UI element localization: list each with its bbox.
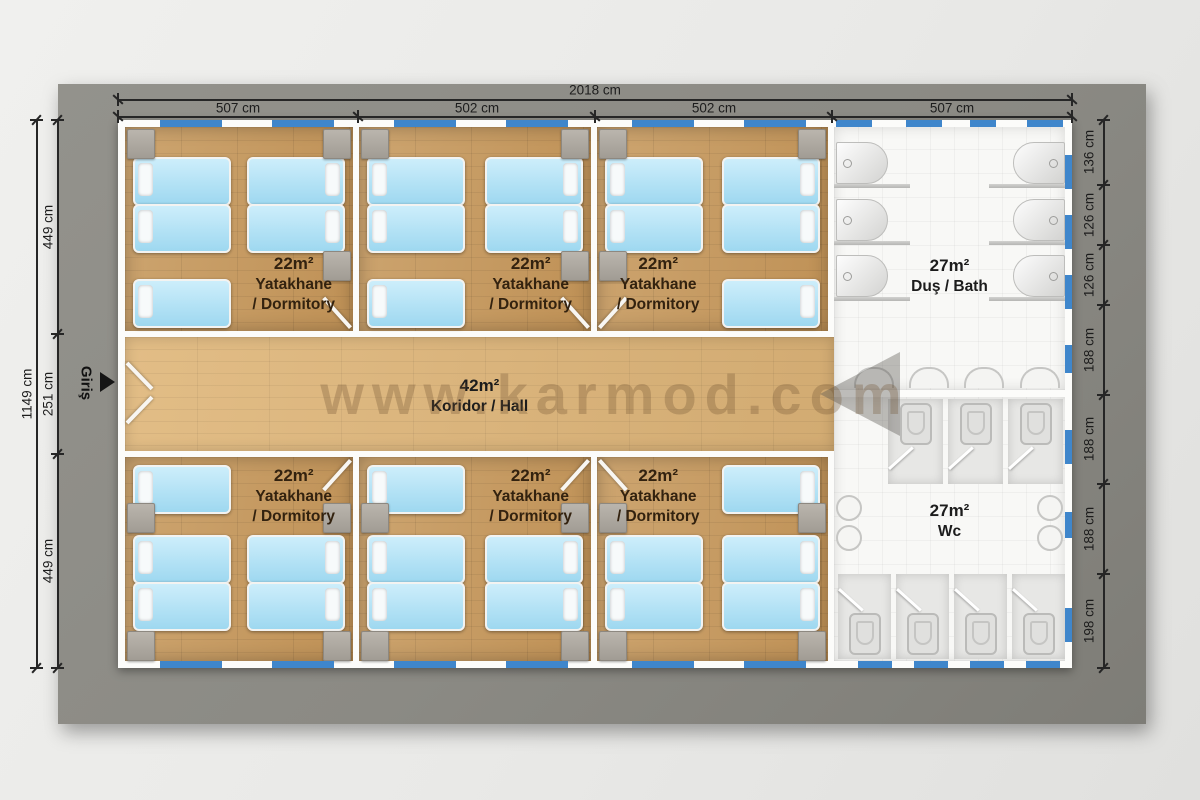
locker: [361, 129, 389, 159]
room-label: 22m² Yatakhane / Dormitory: [239, 253, 348, 315]
pillow: [563, 588, 578, 621]
stall-door: [838, 588, 864, 612]
shower-partition: [989, 297, 1065, 301]
dimension-label: 507 cm: [216, 101, 260, 116]
window: [744, 661, 806, 668]
room-label: 22m² Yatakhane / Dormitory: [604, 465, 713, 527]
dimension-label: 449 cm: [41, 539, 56, 583]
room-name-tr: Yatakhane: [239, 487, 348, 507]
dimension-line-total-height: [36, 120, 38, 668]
shower-partition: [834, 297, 910, 301]
dimension-label: 2018 cm: [569, 83, 621, 98]
bed: [485, 204, 583, 253]
shower-tray: [836, 199, 888, 241]
dimension-label: 188 cm: [1082, 417, 1097, 461]
bed: [367, 204, 465, 253]
watermark-arrow-icon: [820, 352, 900, 436]
window: [970, 661, 1004, 668]
bed: [605, 157, 703, 206]
bed: [485, 157, 583, 206]
toilet: [900, 403, 932, 445]
pillow: [800, 588, 815, 621]
locker: [127, 503, 155, 533]
bed: [722, 204, 820, 253]
dimension-label: 502 cm: [455, 101, 499, 116]
dimension-label: 198 cm: [1082, 599, 1097, 643]
bed: [722, 279, 820, 328]
locker: [561, 631, 589, 661]
window: [1065, 155, 1072, 189]
locker: [323, 631, 351, 661]
room-area: 27m²: [834, 255, 1065, 277]
window: [906, 120, 942, 127]
stall-door: [1008, 446, 1034, 470]
bed: [247, 535, 345, 584]
window: [160, 120, 222, 127]
window: [506, 661, 568, 668]
shower-tray: [1013, 142, 1065, 184]
locker: [361, 503, 389, 533]
pillow: [563, 210, 578, 243]
pillow: [138, 210, 153, 243]
bed: [485, 582, 583, 631]
bed: [722, 582, 820, 631]
toilet-stall: [838, 574, 891, 659]
pillow: [372, 588, 387, 621]
bed: [722, 535, 820, 584]
toilet: [849, 613, 881, 655]
room-label: 22m² Yatakhane / Dormitory: [475, 465, 586, 527]
dimension-label: 1149 cm: [20, 369, 35, 420]
pillow: [138, 588, 153, 621]
room-label: 42m² Koridor / Hall: [125, 375, 834, 417]
shower-partition: [834, 184, 910, 188]
room-area: 22m²: [604, 465, 713, 487]
room-area: 22m²: [239, 465, 348, 487]
window: [272, 661, 334, 668]
pillow: [325, 588, 340, 621]
washbasin: [1020, 367, 1060, 388]
room-area: 22m²: [604, 253, 713, 275]
locker: [599, 129, 627, 159]
pillow: [563, 541, 578, 574]
pillow: [372, 163, 387, 196]
shower-tray: [836, 142, 888, 184]
window: [1026, 661, 1060, 668]
pillow: [372, 285, 387, 318]
toilet-stall: [1012, 574, 1065, 659]
bed: [133, 582, 231, 631]
pillow: [372, 471, 387, 504]
toilet-stall: [1008, 399, 1063, 484]
room-dormitory-2: 22m² Yatakhane / Dormitory: [359, 127, 591, 331]
bed: [133, 535, 231, 584]
bed: [605, 204, 703, 253]
window: [1065, 345, 1072, 373]
dimension-label: 126 cm: [1082, 193, 1097, 237]
dimension-label: 188 cm: [1082, 328, 1097, 372]
bed: [133, 157, 231, 206]
room-name-en: / Dormitory: [239, 295, 348, 315]
window: [858, 661, 892, 668]
pillow: [372, 210, 387, 243]
room-name-tr: Yatakhane: [604, 487, 713, 507]
washbasin: [909, 367, 949, 388]
locker: [561, 129, 589, 159]
stall-door: [1012, 588, 1038, 612]
bed: [722, 157, 820, 206]
pillow: [800, 471, 815, 504]
pillow: [325, 210, 340, 243]
room-name-en: / Dormitory: [604, 295, 713, 315]
dimension-label: 449 cm: [41, 205, 56, 249]
window: [744, 120, 806, 127]
room-label: 22m² Yatakhane / Dormitory: [475, 253, 586, 315]
toilet: [965, 613, 997, 655]
entrance-label: Giriş: [78, 366, 95, 400]
dimension-label: 502 cm: [692, 101, 736, 116]
pillow: [610, 163, 625, 196]
window: [632, 120, 694, 127]
shower-partition: [989, 184, 1065, 188]
room-dormitory-6: 22m² Yatakhane / Dormitory: [597, 457, 828, 661]
wc-stall-row: [888, 399, 1063, 484]
pillow: [563, 163, 578, 196]
window: [914, 661, 948, 668]
pillow: [610, 588, 625, 621]
toilet-stall: [896, 574, 949, 659]
locker: [361, 631, 389, 661]
shower-partition: [989, 241, 1065, 245]
bed: [247, 582, 345, 631]
stall-door: [888, 446, 914, 470]
dimension-label: 251 cm: [41, 372, 56, 416]
bed: [367, 535, 465, 584]
window: [160, 661, 222, 668]
locker: [798, 631, 826, 661]
bed: [605, 535, 703, 584]
pillow: [800, 210, 815, 243]
pillow: [800, 285, 815, 318]
toilet: [907, 613, 939, 655]
room-corridor: 42m² Koridor / Hall: [125, 337, 834, 451]
bed: [367, 279, 465, 328]
pillow: [325, 163, 340, 196]
dimension-label: 126 cm: [1082, 253, 1097, 297]
window: [1065, 430, 1072, 464]
room-name: Duş / Bath: [834, 277, 1065, 297]
room-label: 27m² Duş / Bath: [834, 255, 1065, 297]
building-footprint: 22m² Yatakhane / Dormitory 22m² Yatakhan…: [118, 120, 1072, 668]
room-area: 42m²: [125, 375, 834, 397]
window: [632, 661, 694, 668]
pillow: [372, 541, 387, 574]
dimension-line-right-segments: [1103, 120, 1105, 668]
room-name-en: / Dormitory: [604, 507, 713, 527]
window: [1065, 275, 1072, 309]
dimension-label: 136 cm: [1082, 130, 1097, 174]
stall-door: [948, 446, 974, 470]
window: [1065, 512, 1072, 538]
bed: [367, 157, 465, 206]
room-dormitory-5: 22m² Yatakhane / Dormitory: [359, 457, 591, 661]
bed: [133, 279, 231, 328]
drain-icon: [843, 216, 852, 225]
floorplan-page: { "watermark": "www.karmod.com", "entran…: [0, 0, 1200, 800]
room-bath: 27m² Duş / Bath: [834, 127, 1065, 390]
room-label: 22m² Yatakhane / Dormitory: [604, 253, 713, 315]
room-area: 22m²: [475, 465, 586, 487]
bed: [605, 582, 703, 631]
shower-tray: [1013, 199, 1065, 241]
pillow: [325, 541, 340, 574]
window: [506, 120, 568, 127]
room-area: 27m²: [834, 500, 1065, 522]
pillow: [800, 541, 815, 574]
drain-icon: [843, 159, 852, 168]
toilet: [1020, 403, 1052, 445]
toilet: [960, 403, 992, 445]
bed: [485, 535, 583, 584]
pillow: [138, 285, 153, 318]
window: [970, 120, 996, 127]
room-name-tr: Yatakhane: [604, 275, 713, 295]
bed: [133, 204, 231, 253]
room-area: 22m²: [239, 253, 348, 275]
presentation-board: 22m² Yatakhane / Dormitory 22m² Yatakhan…: [58, 84, 1146, 724]
room-area: 22m²: [475, 253, 586, 275]
room-name: Koridor / Hall: [125, 397, 834, 417]
pillow: [138, 541, 153, 574]
toilet: [1023, 613, 1055, 655]
dimension-line-left-segments: [57, 120, 59, 668]
locker: [798, 503, 826, 533]
locker: [599, 631, 627, 661]
pillow: [138, 471, 153, 504]
dimension-line-top-segments: [118, 116, 1072, 118]
room-wc: 27m² Wc: [834, 397, 1065, 661]
drain-icon: [1049, 159, 1058, 168]
pillow: [138, 163, 153, 196]
room-name-tr: Yatakhane: [475, 275, 586, 295]
pillow: [610, 541, 625, 574]
window: [836, 120, 872, 127]
room-dormitory-4: 22m² Yatakhane / Dormitory: [125, 457, 353, 661]
room-name-tr: Yatakhane: [239, 275, 348, 295]
window: [394, 120, 456, 127]
room-label: 22m² Yatakhane / Dormitory: [239, 465, 348, 527]
room-name-en: / Dormitory: [475, 295, 586, 315]
entrance-arrow-icon: [100, 372, 115, 392]
window: [272, 120, 334, 127]
room-dormitory-1: 22m² Yatakhane / Dormitory: [125, 127, 353, 331]
locker: [323, 129, 351, 159]
pillow: [800, 163, 815, 196]
locker: [798, 129, 826, 159]
bed: [247, 157, 345, 206]
stall-door: [954, 588, 980, 612]
washbasin: [964, 367, 1004, 388]
window: [394, 661, 456, 668]
room-dormitory-3: 22m² Yatakhane / Dormitory: [597, 127, 828, 331]
locker: [127, 631, 155, 661]
window: [1027, 120, 1063, 127]
window: [1065, 215, 1072, 249]
room-name-en: / Dormitory: [475, 507, 586, 527]
room-label: 27m² Wc: [834, 500, 1065, 542]
toilet-stall: [954, 574, 1007, 659]
shower-partition: [834, 241, 910, 245]
wc-stall-row: [838, 574, 1065, 659]
drain-icon: [1049, 216, 1058, 225]
room-name-en: / Dormitory: [239, 507, 348, 527]
bed: [367, 582, 465, 631]
dimension-label: 188 cm: [1082, 507, 1097, 551]
pillow: [610, 210, 625, 243]
stall-door: [896, 588, 922, 612]
bed: [247, 204, 345, 253]
toilet-stall: [948, 399, 1003, 484]
locker: [127, 129, 155, 159]
room-name-tr: Yatakhane: [475, 487, 586, 507]
window: [1065, 608, 1072, 642]
room-name: Wc: [834, 522, 1065, 542]
dimension-label: 507 cm: [930, 101, 974, 116]
